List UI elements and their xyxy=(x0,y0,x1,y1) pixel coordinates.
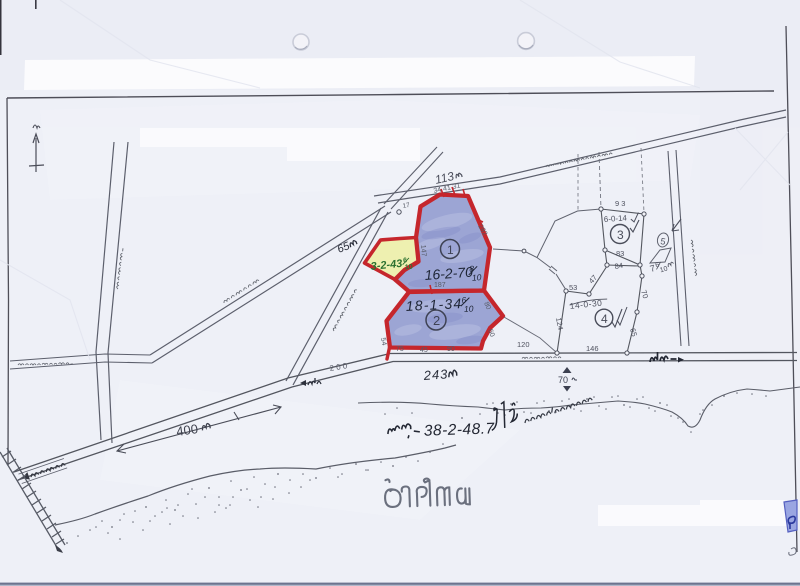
svg-text:146: 146 xyxy=(586,344,599,353)
svg-text:187: 187 xyxy=(434,282,446,289)
svg-text:1: 1 xyxy=(447,243,454,257)
svg-text:10: 10 xyxy=(405,264,414,272)
svg-text:75: 75 xyxy=(396,346,404,353)
svg-text:16-2-70: 16-2-70 xyxy=(424,264,473,283)
svg-text:2: 2 xyxy=(433,313,440,328)
svg-text:3: 3 xyxy=(617,228,624,242)
svg-text:6-0-14: 6-0-14 xyxy=(604,213,628,224)
svg-text:38-2-48.7: 38-2-48.7 xyxy=(424,420,496,439)
svg-text:18-1-34: 18-1-34 xyxy=(405,295,462,314)
svg-text:84: 84 xyxy=(614,261,624,271)
svg-text:10: 10 xyxy=(464,303,474,313)
svg-text:90: 90 xyxy=(447,346,455,353)
svg-text:4: 4 xyxy=(601,312,608,326)
svg-text:10: 10 xyxy=(472,272,482,283)
svg-text:45: 45 xyxy=(420,347,428,354)
svg-text:54: 54 xyxy=(379,337,387,346)
svg-text:83: 83 xyxy=(616,249,624,258)
svg-text:70: 70 xyxy=(558,375,568,385)
svg-text:147: 147 xyxy=(419,245,427,257)
svg-text:9 3: 9 3 xyxy=(615,199,625,208)
svg-text:243: 243 xyxy=(422,366,449,383)
svg-text:120: 120 xyxy=(517,340,530,349)
svg-text:53: 53 xyxy=(569,283,577,292)
svg-text:400: 400 xyxy=(175,421,199,439)
